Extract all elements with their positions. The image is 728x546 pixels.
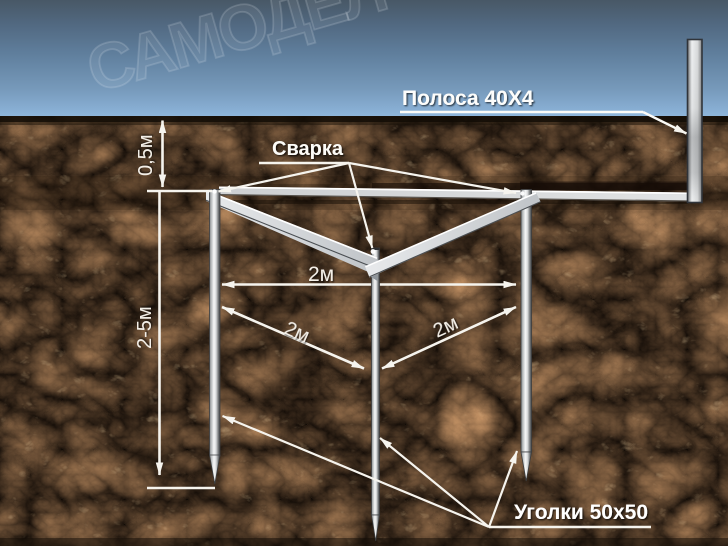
svg-text:Сварка: Сварка [272,138,344,160]
svg-text:2-5м: 2-5м [134,306,156,349]
svg-text:0,5м: 0,5м [135,134,157,176]
svg-text:2м: 2м [308,263,334,286]
svg-text:Полоса 40Х4: Полоса 40Х4 [402,87,534,110]
svg-text:Уголки 50х50: Уголки 50х50 [514,501,648,524]
